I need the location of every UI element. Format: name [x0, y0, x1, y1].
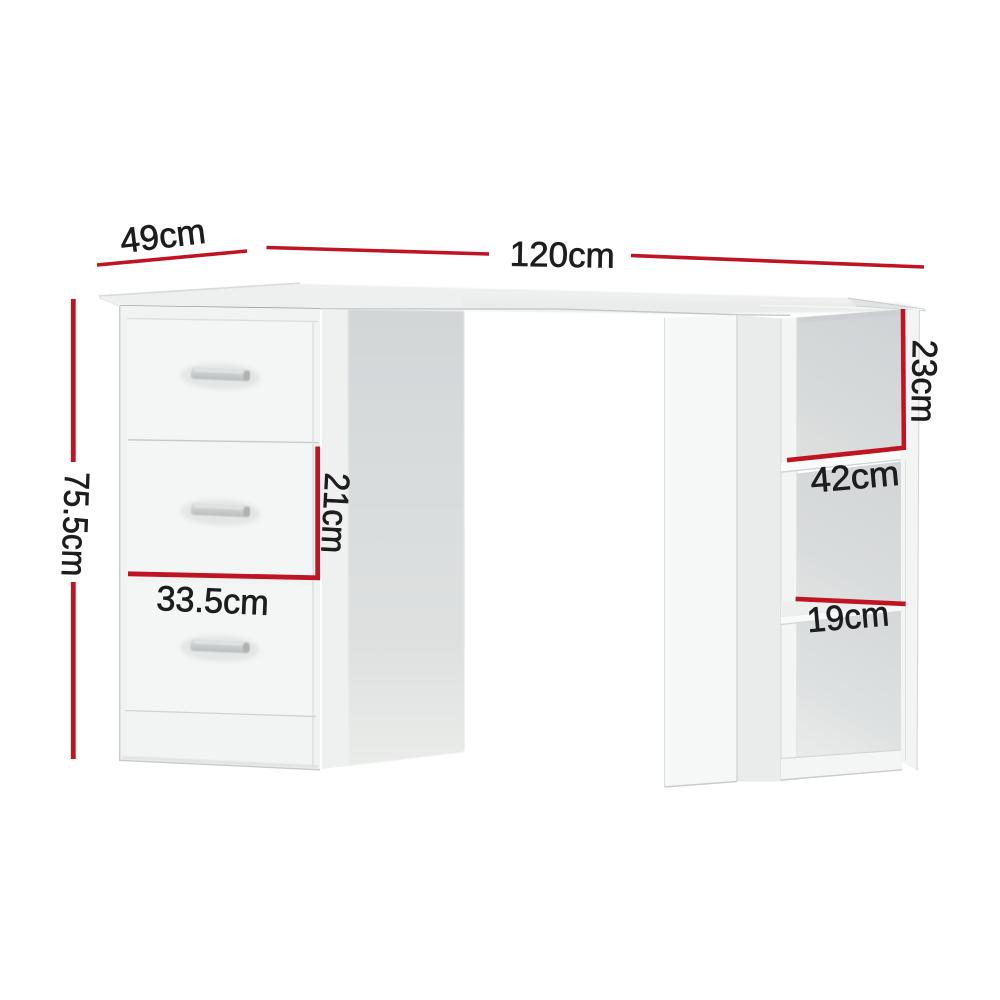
- svg-text:21cm: 21cm: [313, 472, 356, 554]
- svg-text:120cm: 120cm: [509, 235, 615, 276]
- svg-text:33.5cm: 33.5cm: [156, 580, 270, 623]
- svg-text:42cm: 42cm: [809, 453, 901, 500]
- svg-text:23cm: 23cm: [903, 339, 943, 423]
- svg-text:19cm: 19cm: [805, 595, 890, 641]
- svg-text:75.5cm: 75.5cm: [53, 471, 95, 577]
